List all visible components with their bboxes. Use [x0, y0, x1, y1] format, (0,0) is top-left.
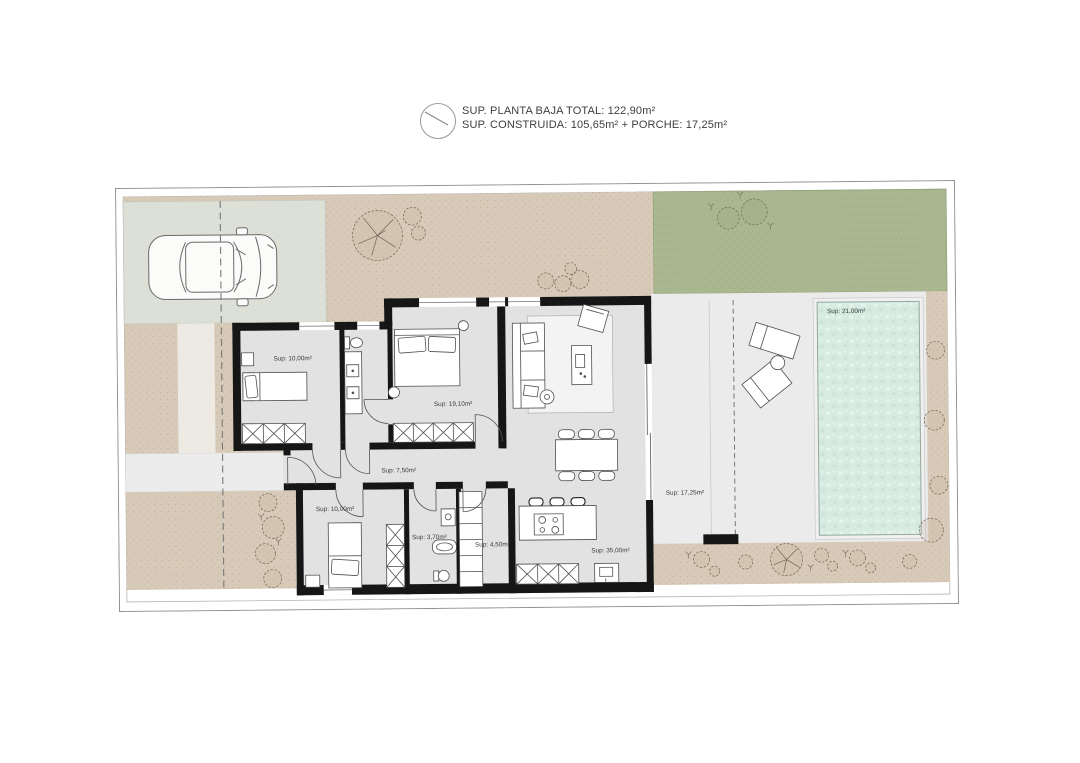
area-total-text: SUP. PLANTA BAJA TOTAL: 122,90m² — [462, 105, 655, 117]
vanity-double-sink — [345, 352, 363, 414]
label-bedroom-1: Sup: 10,00m² — [273, 355, 311, 362]
label-bathroom: Sup: 3,70m² — [412, 534, 447, 541]
pool-side-table — [771, 356, 785, 370]
sliding-door — [645, 364, 653, 500]
label-porch: Sup: 17,25m² — [666, 489, 704, 496]
lawn — [653, 189, 947, 294]
porch-step — [703, 534, 738, 544]
floor-plan-canvas: Sup: 10,00m² Sup: 19,10m² Sup: 7,50m² Su… — [115, 180, 959, 612]
area-built-text: SUP. CONSTRUIDA: 105,65m² + PORCHE: 17,2… — [462, 119, 727, 131]
label-master-bedroom: Sup: 19,10m² — [434, 401, 472, 408]
label-hallway: Sup: 7,50m² — [381, 467, 416, 474]
label-pool: Sup: 21,00m² — [827, 308, 865, 315]
site-plan-sheet: Sup: 10,00m² Sup: 19,10m² Sup: 7,50m² Su… — [115, 180, 959, 612]
side-path — [177, 323, 215, 453]
label-laundry: Sup: 4,50m² — [475, 541, 510, 548]
laundry-closet — [459, 492, 483, 587]
toilet-icon — [344, 337, 362, 349]
kitchen-cabinets — [517, 563, 619, 584]
car-icon — [148, 227, 277, 306]
label-bedroom-2: Sup: 10,00m² — [316, 506, 354, 513]
tv-unit — [572, 345, 592, 384]
side-table — [540, 390, 554, 404]
north-indicator-icon — [418, 100, 460, 144]
floor-plan-page: SUP. PLANTA BAJA TOTAL: 122,90m² SUP. CO… — [0, 0, 1080, 763]
wardrobe — [242, 423, 305, 444]
tree-icon-2 — [770, 543, 802, 575]
wardrobe-vertical — [386, 524, 405, 587]
dining-table — [555, 429, 617, 481]
pool — [813, 297, 925, 539]
wardrobe — [393, 423, 473, 443]
entrance-walkway — [126, 452, 284, 492]
tree-icon — [352, 210, 402, 260]
label-kitchen-living: Sup: 35,00m² — [591, 547, 629, 554]
kitchen-island — [519, 497, 596, 540]
